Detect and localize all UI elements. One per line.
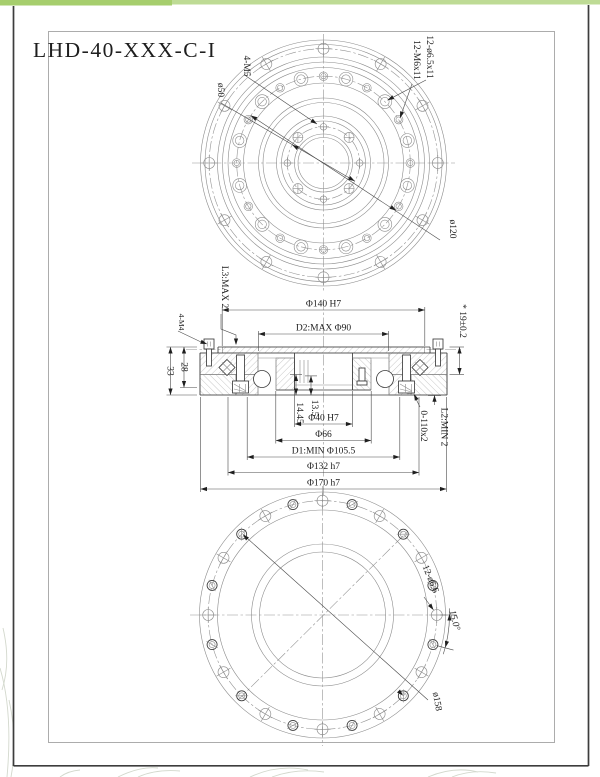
dim-dia40-h7: Φ40 H7 <box>308 414 339 424</box>
dim-28: 28 <box>179 362 189 372</box>
label-4-m5: 4-M5 <box>241 55 251 76</box>
dim-dia132-h7: Φ132 h7 <box>307 462 340 472</box>
label-oring: 0-110x2 <box>418 410 428 442</box>
dim-33: 33 <box>165 366 175 376</box>
label-l2-min: L2:MIN 2 <box>439 408 449 447</box>
label-tapped-holes: 12-M6x11 <box>411 40 421 80</box>
page-title: LHD-40-XXX-C-I <box>33 38 216 62</box>
label-counterbore-holes: 12-ø6.5x11 <box>424 35 434 78</box>
accent-bar-left <box>0 0 172 6</box>
label-dia50: ø50 <box>215 83 225 98</box>
dim-19: * 19±0.2 <box>457 304 467 338</box>
accent-bar-right <box>172 0 600 5</box>
label-4-m4: 4-M4 <box>177 314 186 331</box>
label-dia120: ø120 <box>447 220 457 239</box>
dim-dia140-h7: Φ140 H7 <box>306 300 341 310</box>
label-l3-max: L3:MAX 2 <box>219 266 229 309</box>
dim-14-45: 14.45 <box>294 402 304 424</box>
dim-d1-min: D1:MIN Φ105.5 <box>292 447 356 457</box>
dim-dia66: Φ66 <box>315 430 332 440</box>
dim-dia170-h7: Φ170 h7 <box>307 479 340 489</box>
dim-d2-max: D2:MAX Φ90 <box>296 324 351 334</box>
technical-drawing-sheet: LHD-40-XXX-C-I 4-M5 ø50 12-ø6.5x11 12-M6 <box>0 0 600 777</box>
